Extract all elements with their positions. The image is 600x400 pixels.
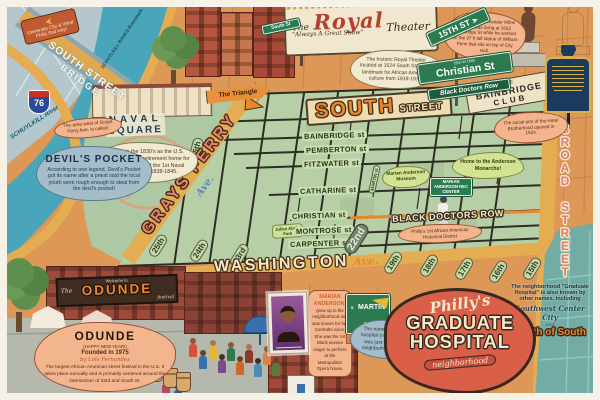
odunde-banner: The Welcome to ODUNDE festival: [56, 274, 179, 307]
i76-shield-icon: 76: [28, 90, 50, 114]
drum: [176, 372, 191, 392]
festival-person: [226, 342, 235, 361]
rowhouse: [185, 5, 221, 77]
graduate-hospital-logo: Philly's GRADUATE HOSPITAL neighborhood: [384, 288, 536, 394]
devils-pocket-note: DEVIL'S POCKET According to one legend, …: [36, 146, 152, 201]
broad-street-label: BROAD STREET: [556, 122, 574, 302]
odunde-note: ODUNDE (HAPPY NEW YEAR!) Founded in 1975…: [34, 322, 176, 392]
royal-theater-marquee: The Royal Theater "Always A Great Show": [283, 1, 439, 56]
tree: [160, 26, 186, 84]
festival-person: [244, 344, 253, 363]
festival-person: [217, 354, 226, 373]
anderson-monarchs-bubble: Home to the Anderson Monarchs!: [452, 152, 524, 179]
arrow-right-icon: ➤: [471, 17, 479, 26]
festival-person: [271, 357, 280, 376]
tree: [4, 258, 34, 332]
festival-person: [188, 338, 197, 357]
map-illustration: ⮜ University City & West Philly that way…: [0, 0, 600, 400]
keystone-icon: [560, 44, 577, 57]
festival-person: [208, 340, 217, 359]
festival-person: [198, 350, 207, 369]
rowhouse: [221, 12, 253, 76]
devils-pocket-title: DEVIL'S POCKET: [45, 154, 143, 167]
festival-person: [253, 358, 262, 377]
rec-center-sign: MARIAN ANDERSON REC CENTER: [430, 178, 472, 196]
festival-person: [235, 356, 244, 375]
marian-anderson-stamp: [267, 291, 309, 354]
